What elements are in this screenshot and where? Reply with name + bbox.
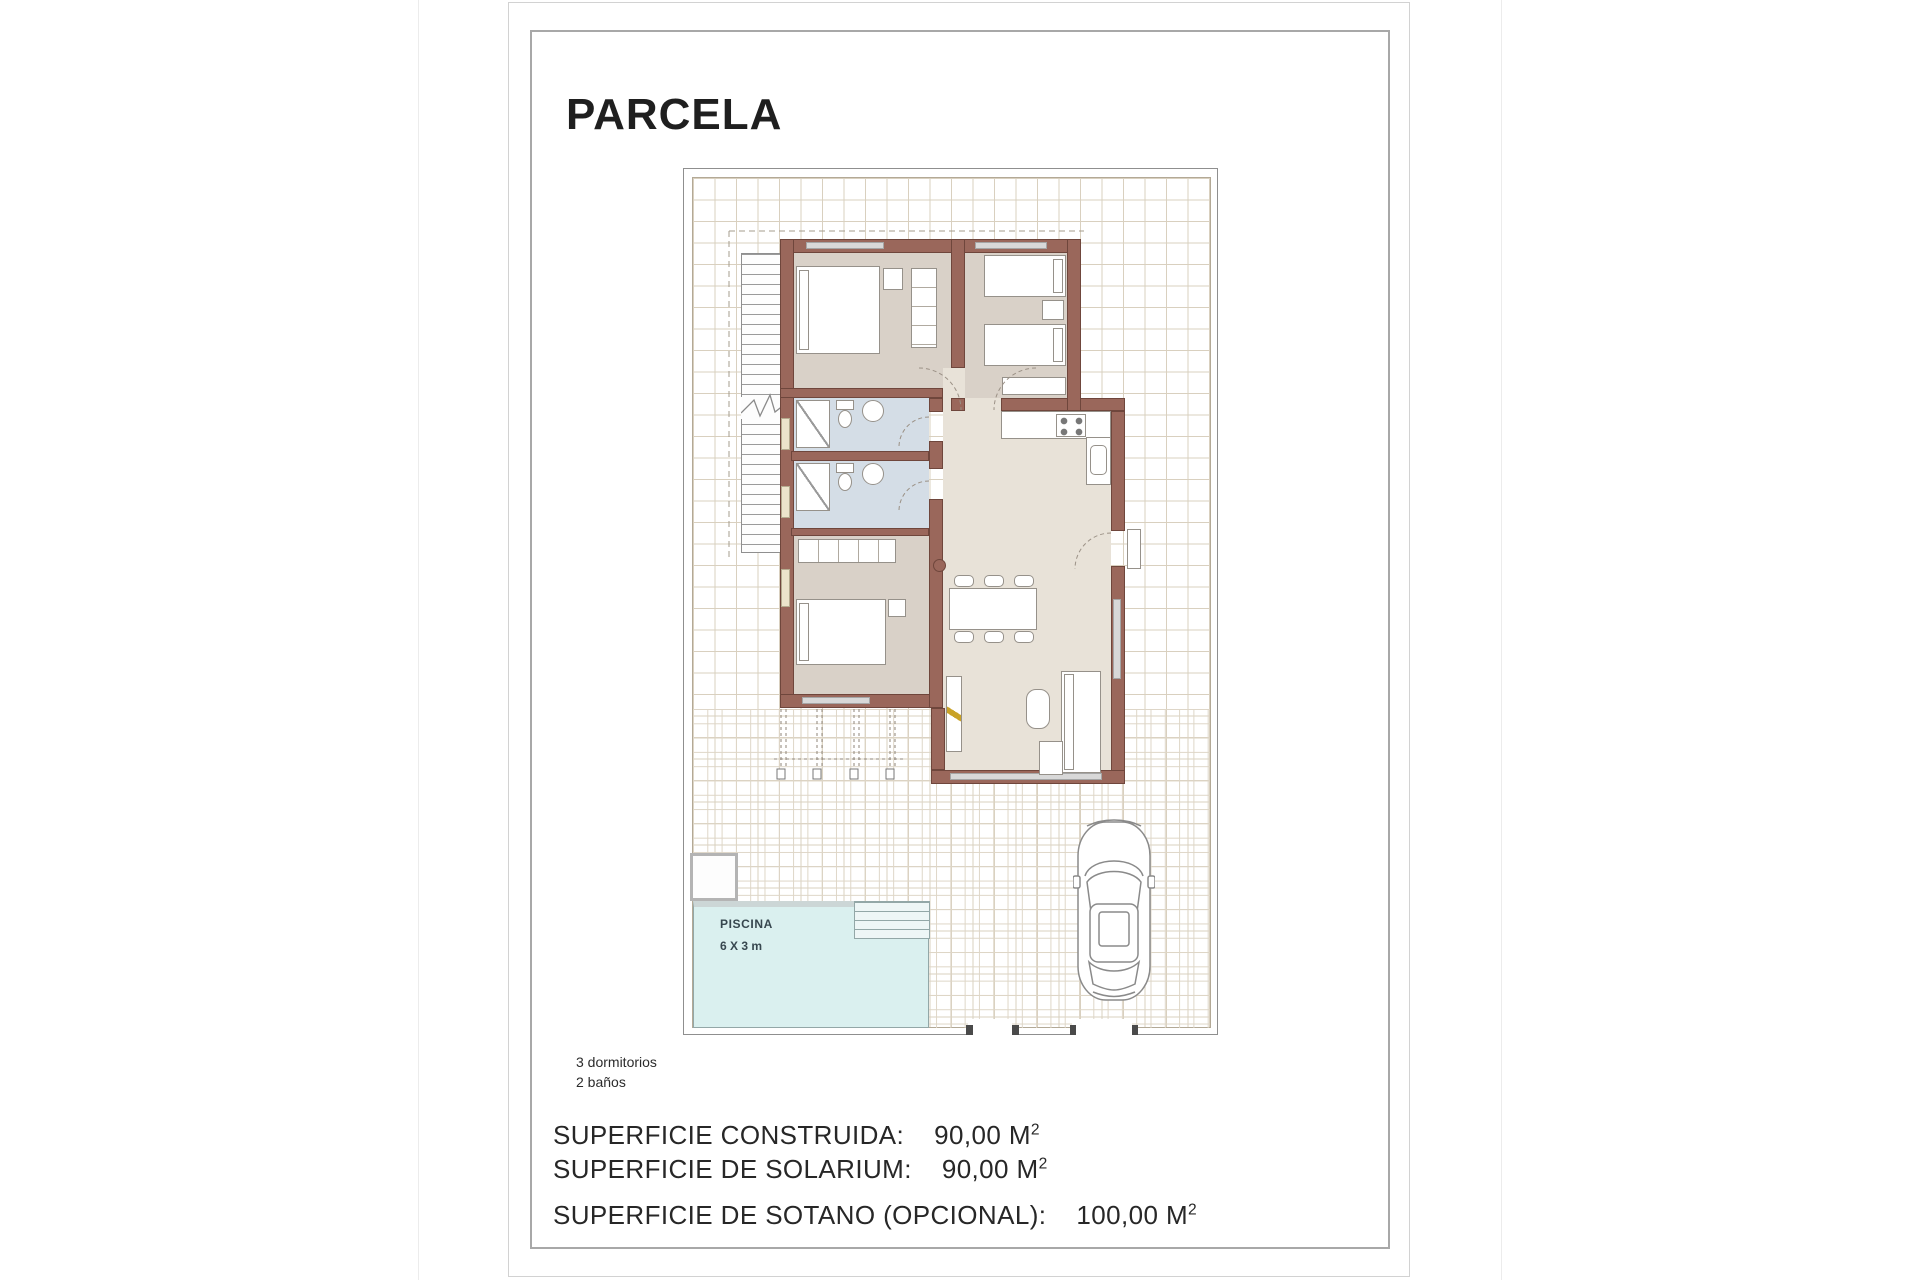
site-plan: PISCINA 6 X 3 m [683,168,1218,1035]
feature-bedrooms: 3 dormitorios [576,1052,657,1072]
area-row: SUPERFICIE DE SOTANO (OPCIONAL):100,00 M… [553,1200,1197,1231]
area-label: SUPERFICIE DE SOLARIUM: [553,1154,912,1184]
area-row: SUPERFICIE CONSTRUIDA:90,00 M2 [553,1120,1040,1151]
area-value: 90,00 M2 [942,1154,1048,1184]
area-value: 90,00 M2 [934,1120,1040,1150]
area-row: SUPERFICIE DE SOLARIUM:90,00 M2 [553,1154,1048,1185]
area-value: 100,00 M2 [1076,1200,1197,1230]
area-label: SUPERFICIE CONSTRUIDA: [553,1120,904,1150]
page-title: PARCELA [566,90,782,140]
plan-annotations [684,169,1219,1036]
area-label: SUPERFICIE DE SOTANO (OPCIONAL): [553,1200,1046,1230]
feature-bathrooms: 2 baños [576,1072,657,1092]
page: PARCELA PISCINA 6 X 3 m [0,0,1920,1280]
